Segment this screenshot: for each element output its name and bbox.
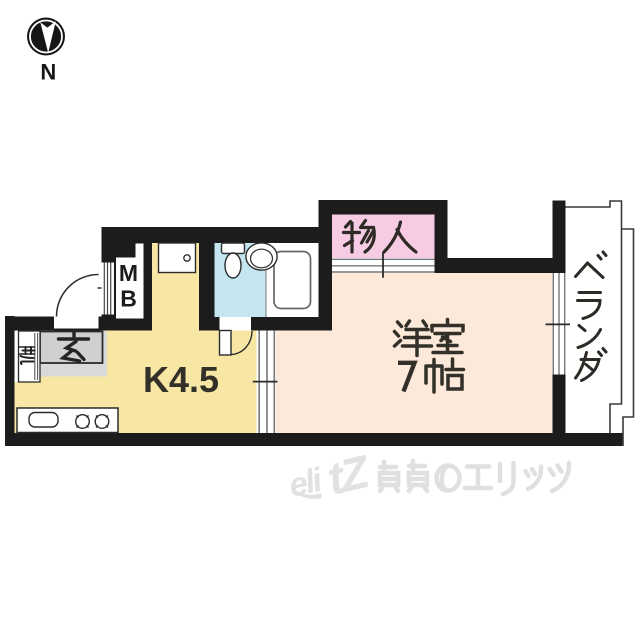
svg-text:N: N bbox=[40, 59, 56, 84]
svg-text:B: B bbox=[120, 286, 137, 312]
svg-text:M: M bbox=[119, 260, 138, 286]
svg-text:K4.5: K4.5 bbox=[143, 359, 219, 400]
